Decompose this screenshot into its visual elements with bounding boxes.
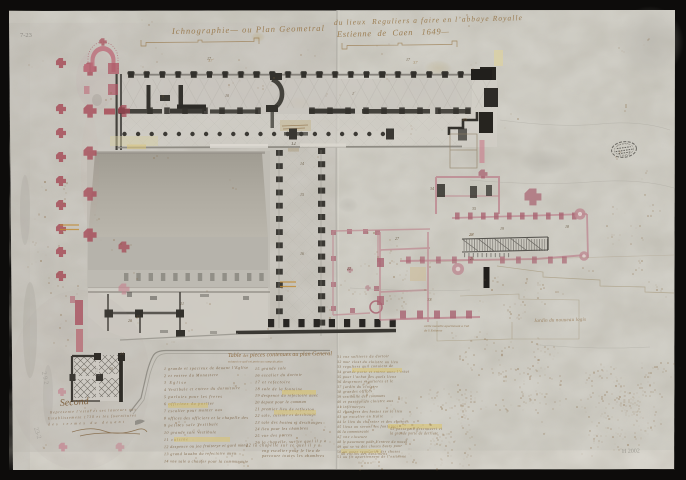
svg-text:15: 15	[300, 192, 304, 197]
svg-text:34: 34	[430, 186, 434, 191]
svg-text:44 le lieu du charnier et des: 44 le lieu du charnier et des choses	[337, 420, 407, 424]
svg-text:10 grande sale Vestibule: 10 grande sale Vestibule	[164, 429, 216, 435]
svg-text:16: 16	[300, 251, 304, 256]
svg-text:7-23: 7-23	[20, 32, 32, 39]
svg-text:31 vne soliterie du dortoir: 31 vne soliterie du dortoir	[337, 354, 390, 359]
svg-text:14 vne sale a chaufer pour la: 14 vne sale a chaufer pour la communaute	[164, 458, 248, 463]
svg-text:8 offices des officiers et la: 8 offices des officiers et la chapelle d…	[164, 415, 248, 421]
svg-text:37: 37	[413, 60, 418, 65]
svg-text:20 depost pour le commun: 20 depost pour le commun	[255, 399, 306, 405]
svg-text:5 parloirs pour les freres: 5 parloirs pour les freres	[164, 394, 222, 399]
svg-text:de S Estienne: de S Estienne	[424, 329, 443, 333]
svg-text:H 2002: H 2002	[622, 448, 640, 455]
svg-text:17 et refectoire: 17 et refectoire	[255, 379, 290, 384]
svg-text:15 grande sale: 15 grande sale	[255, 365, 286, 371]
svg-text:13 grand lauabo du refectoire: 13 grand lauabo du refectoire aueu	[164, 450, 236, 456]
svg-text:parcoure toutes les chambres: parcoure toutes les chambres	[261, 454, 325, 458]
svg-text:43 un escalier en Italie: 43 un escalier en Italie	[337, 414, 383, 419]
svg-text:46 la communaute: 46 la communaute	[337, 429, 369, 434]
svg-text:9: 9	[162, 94, 164, 99]
svg-text:26: 26	[470, 256, 474, 261]
svg-text:vng escalier pour le lieu de: vng escalier pour le lieu de	[262, 449, 320, 453]
svg-text:36 despences regulieres et le: 36 despences regulieres et le	[337, 379, 393, 384]
svg-text:10: 10	[225, 93, 229, 98]
svg-text:21: 21	[180, 301, 184, 306]
svg-text:vielle muraille apartienant a: vielle muraille apartienant a l’ab	[424, 324, 470, 328]
svg-text:22: 22	[347, 266, 351, 271]
svg-text:47 vne closture: 47 vne closture	[337, 435, 367, 439]
svg-text:35: 35	[472, 206, 476, 211]
svg-text:19: 19	[500, 226, 504, 231]
svg-text:suiuant ce quil est porte au c: suiuant ce quil est porte au camp du pla…	[228, 360, 283, 364]
svg-text:28: 28	[469, 232, 474, 237]
svg-text:36: 36	[462, 118, 468, 123]
svg-text:37 jardin du cloistre: 37 jardin du cloistre	[337, 385, 378, 389]
svg-text:14: 14	[300, 161, 304, 166]
svg-text:25 vue des portes: 25 vue des portes	[255, 432, 293, 438]
svg-text:24 lieu pour les chambres: 24 lieu pour les chambres	[255, 425, 309, 431]
svg-text:3 Eglise: 3 Eglise	[164, 380, 186, 385]
svg-text:46 enclos des bastimens: 46 enclos des bastimens	[341, 452, 388, 456]
svg-text:22 la chapelle sur ce quel il: 22 la chapelle sur ce quel il y a	[246, 444, 320, 448]
svg-text:18: 18	[565, 224, 569, 229]
svg-text:16 escalier du dortoir: 16 escalier du dortoir	[255, 372, 303, 378]
